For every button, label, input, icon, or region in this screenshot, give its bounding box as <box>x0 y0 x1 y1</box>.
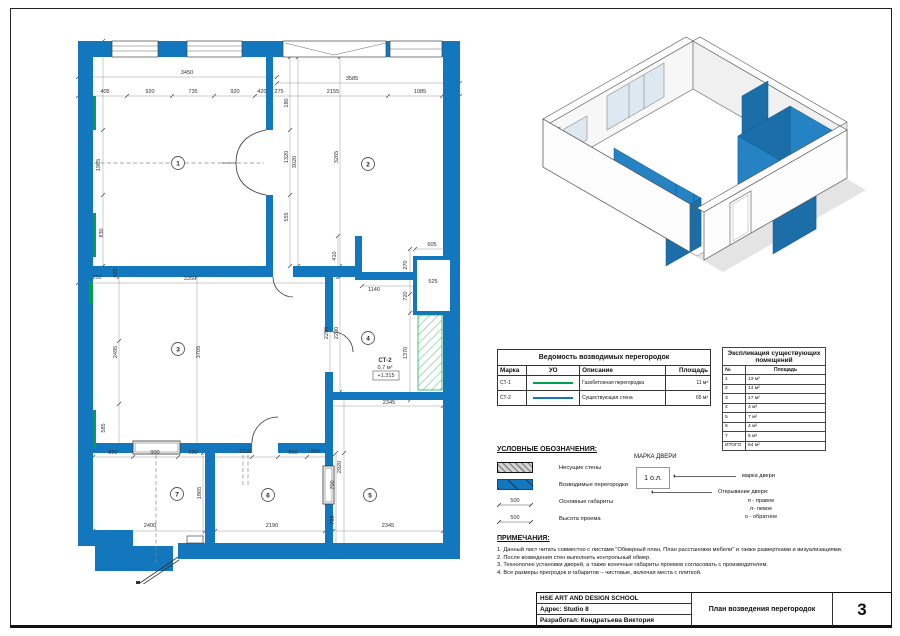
legend: УСЛОВНЫЕ ОБОЗНАЧЕНИЯ: Несущие стены Возв… <box>497 446 642 527</box>
leader-line <box>674 476 736 477</box>
note-item: 1. Данный лист читать совместно с листам… <box>497 547 889 555</box>
dimension-label: 2400 <box>144 523 156 529</box>
dimension-label: 3585 <box>346 76 358 82</box>
partition-desc: Существующая стена <box>580 391 666 406</box>
dimension-label: 2345 <box>383 400 395 406</box>
dimension-label: 1985 <box>96 159 102 171</box>
dimension-label: 3450 <box>181 70 193 76</box>
floor-plan: 3450405920735920420275358521551085335025… <box>72 36 467 584</box>
legend-label: Несущие стены <box>559 465 601 471</box>
col-header: УО <box>527 366 580 376</box>
vent-shaft <box>415 258 452 313</box>
door-option: л- левое <box>726 505 796 513</box>
legend-item: 500 Высота проема <box>497 510 642 527</box>
legend-label: Основные габариты <box>559 499 613 505</box>
dimension-label: 270 <box>403 260 409 269</box>
col-header: Площадь <box>746 366 826 375</box>
dimension-labels: 3450405920735920420275358521551085335025… <box>92 70 437 529</box>
dimension-label: 0.7 м² <box>377 365 392 371</box>
room-no: 5 <box>723 413 746 423</box>
dimension-label: 1140 <box>368 287 380 293</box>
room-no: 6 <box>723 422 746 432</box>
bearing-wall-swatch <box>497 462 533 473</box>
room-area: 4 м² <box>746 422 826 432</box>
dimension-label: 585 <box>101 423 107 432</box>
hatched-zone <box>418 315 442 390</box>
dimension-label: 3020 <box>292 156 298 168</box>
room-number: 3 <box>176 346 180 353</box>
col-header: Описание <box>580 366 666 376</box>
partition-area: 65 м² <box>666 391 711 406</box>
door-open-options: п - правое л- левое о - обратное <box>726 497 796 521</box>
partitions-table: Ведомость возводимых перегородок Марка У… <box>497 349 711 406</box>
room-number: 2 <box>366 161 370 168</box>
dimension-label: 2345 <box>382 523 394 529</box>
col-header: № <box>723 366 746 375</box>
room-area: 13 м² <box>746 375 826 385</box>
dimension-label: 2190 <box>266 523 278 529</box>
svg-text:500: 500 <box>510 515 519 521</box>
door-leaves <box>133 441 334 543</box>
legend-title: УСЛОВНЫЕ ОБОЗНАЧЕНИЯ: <box>497 446 642 453</box>
leader-line <box>652 492 712 493</box>
door-tag: 1 о.л. <box>636 467 670 489</box>
room-no: 4 <box>723 403 746 413</box>
dimension-label: 1225 <box>239 449 251 455</box>
room-number: 1 <box>176 160 180 167</box>
room-number: 6 <box>266 492 270 499</box>
dimension-label: 3350 <box>184 276 196 282</box>
legend-item: 500 Основные габариты <box>497 493 642 510</box>
dimension-label: 1370 <box>403 347 409 359</box>
room-number: 4 <box>366 335 370 342</box>
dimension-label: 555 <box>284 212 290 221</box>
author: Разработал: Кондратьева Виктория <box>537 615 691 626</box>
legend-item: Несущие стены <box>497 459 642 476</box>
dimension-label: 2495 <box>113 346 119 358</box>
title-block: HSE ART AND DESIGN SCHOOL Адрес: Studio … <box>536 592 892 627</box>
axis-lines <box>94 163 264 566</box>
dimension-label: 250 <box>92 275 101 281</box>
room-area: 4 м² <box>746 403 826 413</box>
room-total-area: 64 м² <box>746 441 826 451</box>
dimension-label: 650 <box>288 450 297 456</box>
door-tag-callout: марка двери <box>742 473 775 479</box>
title-block-info: HSE ART AND DESIGN SCHOOL Адрес: Studio … <box>537 593 691 626</box>
room-total-label: ИТОГО <box>723 441 746 451</box>
dimension-label: 410 <box>332 251 338 260</box>
notes: ПРИМЕЧАНИЯ: 1. Данный лист читать совмес… <box>497 535 889 577</box>
arrow-icon <box>671 474 675 478</box>
dimension-label: 605 <box>427 242 436 248</box>
partition-mark: СТ-2 <box>498 391 527 406</box>
dimension-label: 625 <box>113 268 119 277</box>
partition-area: 11 м² <box>666 376 711 391</box>
dimension-label: 2920 <box>337 461 343 473</box>
room-no: 7 <box>723 432 746 442</box>
svg-text:500: 500 <box>510 498 519 504</box>
dimension-label: 3705 <box>196 346 202 358</box>
dimension-label: 275 <box>274 89 283 95</box>
dimension-label: 3265 <box>334 151 340 163</box>
room-no: 1 <box>723 375 746 385</box>
dimension-label: 2290 <box>334 327 340 339</box>
partition-desc: Газобетонная перегородка <box>580 376 666 391</box>
rooms-explication-table: Экспликация существующих помещений № Пло… <box>722 347 826 451</box>
room-area: 17 м² <box>746 394 826 404</box>
dimension-label: 650 <box>188 450 197 456</box>
dimension-label: 1320 <box>284 151 290 163</box>
partition-symbol <box>527 391 580 406</box>
col-header: Площадь <box>666 366 711 376</box>
organization: HSE ART AND DESIGN SCHOOL <box>537 593 691 604</box>
dimension-label: 2290 <box>324 327 330 339</box>
partitions-table-title: Ведомость возводимых перегородок <box>498 350 711 366</box>
arrow-icon <box>649 490 653 494</box>
room-number: 7 <box>175 491 179 498</box>
note-item: 3. Технологию установки дверей, а также … <box>497 562 889 570</box>
room-no: 3 <box>723 394 746 404</box>
dimension-label: 1085 <box>414 89 426 95</box>
door-mark-title: МАРКА ДВЕРИ <box>634 454 804 460</box>
dimension-label: 700 <box>330 480 336 489</box>
dimension-label: 785 <box>330 515 336 524</box>
dimension-label: 735 <box>188 89 197 95</box>
dimension-symbol: 500 <box>497 496 533 508</box>
drawing-sheet: 3450405920735920420275358521551085335025… <box>0 0 900 636</box>
sheet-number: 3 <box>833 593 891 626</box>
notes-title: ПРИМЕЧАНИЯ: <box>497 535 889 542</box>
door-option: п - правое <box>726 497 796 505</box>
door-open-callout: Открывание двери: <box>718 489 768 495</box>
legend-label: Возводимые перегородки <box>559 482 628 488</box>
col-header: Марка <box>498 366 527 376</box>
rooms-table-title: Экспликация существующих помещений <box>723 348 826 366</box>
dimension-label: 920 <box>230 89 239 95</box>
room-area: 5 м² <box>746 432 826 442</box>
door-mark-legend: МАРКА ДВЕРИ 1 о.л. марка двери Открывани… <box>634 454 804 466</box>
dimension-label: 2155 <box>327 89 339 95</box>
dimension-label: +1.315 <box>377 373 394 379</box>
room-area: 14 м² <box>746 384 826 394</box>
dimension-label: 365 <box>310 449 319 455</box>
door-option: о - обратное <box>726 513 796 521</box>
dimension-label: 405 <box>100 89 109 95</box>
partition-mark: СТ-1 <box>498 376 527 391</box>
room-no: 2 <box>723 384 746 394</box>
dimension-label: 830 <box>99 228 105 237</box>
dimension-label: СТ-2 <box>378 358 392 364</box>
note-item: 4. Все размеры прегродок и габаритов – ч… <box>497 570 889 578</box>
legend-item: Возводимые перегородки <box>497 476 642 493</box>
room-area: 7 м² <box>746 413 826 423</box>
drawing-title: План возведения перегородок <box>691 593 833 626</box>
new-partition-swatch <box>497 479 533 490</box>
room-number: 5 <box>368 492 372 499</box>
dimension-label: 900 <box>150 450 159 456</box>
dimension-symbol: 500 <box>497 513 533 525</box>
dimension-label: 180 <box>284 98 290 107</box>
dimension-label: 920 <box>145 89 154 95</box>
partition-symbol <box>527 376 580 391</box>
door-arcs <box>136 130 353 584</box>
dimension-label: 720 <box>403 291 409 300</box>
dimension-label: 525 <box>428 279 437 285</box>
legend-label: Высота проема <box>559 516 601 522</box>
axonometric-view <box>498 34 890 330</box>
dimension-label: 1865 <box>197 487 203 499</box>
address: Адрес: Studio 8 <box>537 604 691 615</box>
dimension-label: 850 <box>108 450 117 456</box>
dimension-label: 420 <box>257 89 266 95</box>
